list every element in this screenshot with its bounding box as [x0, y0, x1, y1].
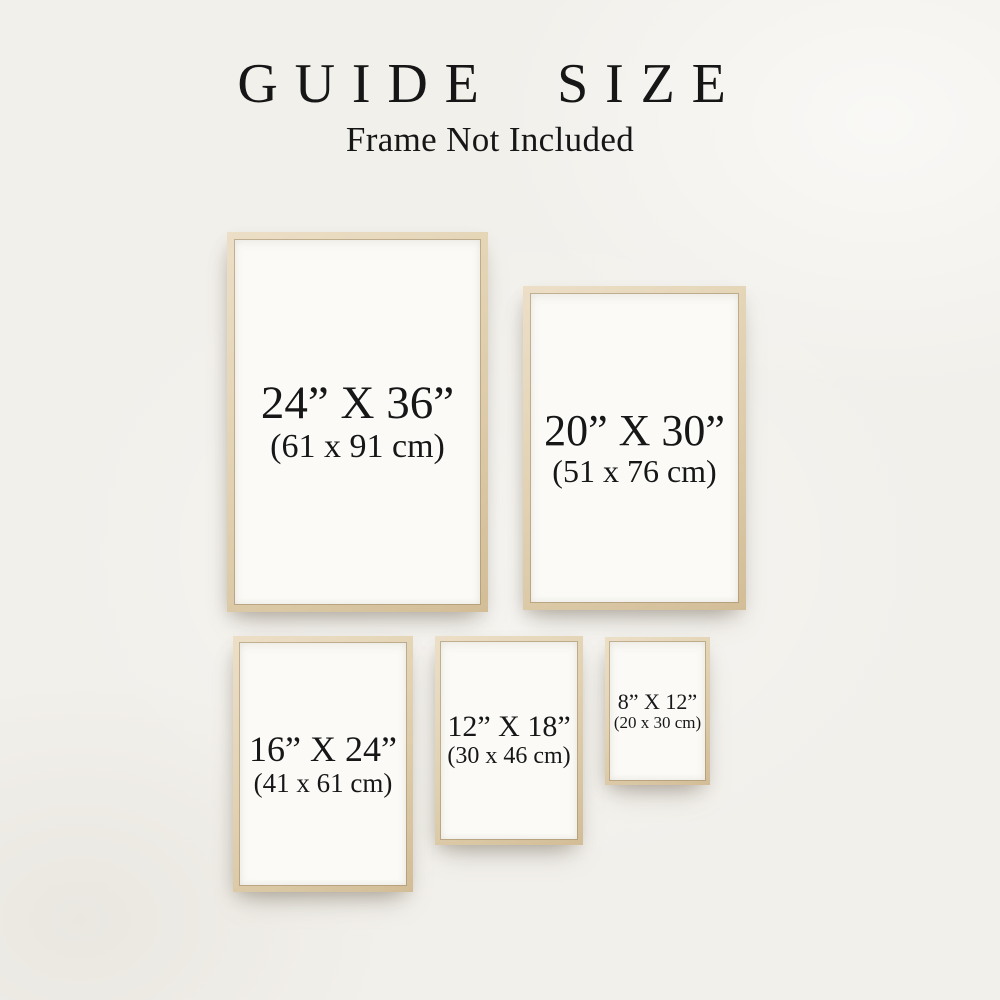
size-label-cm: (41 x 61 cm) — [254, 769, 393, 798]
poster-16x24: 16” X 24” (41 x 61 cm) — [240, 643, 406, 885]
page-title: GUIDE SIZE — [0, 56, 980, 112]
frame-24x36: 24” X 36” (61 x 91 cm) — [227, 232, 488, 612]
size-label-cm: (30 x 46 cm) — [447, 744, 570, 770]
poster-24x36: 24” X 36” (61 x 91 cm) — [235, 240, 480, 604]
poster-12x18: 12” X 18” (30 x 46 cm) — [441, 642, 577, 839]
size-label-cm: (51 x 76 cm) — [552, 454, 716, 489]
header: GUIDE SIZE Frame Not Included — [0, 56, 980, 157]
size-label-inches: 24” X 36” — [261, 378, 454, 429]
size-label-inches: 20” X 30” — [544, 407, 725, 455]
size-label-cm: (61 x 91 cm) — [270, 429, 445, 466]
size-guide-image: GUIDE SIZE Frame Not Included 24” X 36” … — [0, 0, 1000, 1000]
frame-12x18: 12” X 18” (30 x 46 cm) — [435, 636, 583, 845]
size-label-cm: (20 x 30 cm) — [614, 714, 701, 732]
size-label-inches: 16” X 24” — [249, 730, 397, 769]
size-label-inches: 12” X 18” — [447, 711, 570, 743]
size-label-inches: 8” X 12” — [618, 690, 697, 714]
frame-16x24: 16” X 24” (41 x 61 cm) — [233, 636, 413, 892]
frame-20x30: 20” X 30” (51 x 76 cm) — [523, 286, 746, 610]
frame-8x12: 8” X 12” (20 x 30 cm) — [605, 637, 710, 785]
page-subtitle: Frame Not Included — [0, 122, 980, 157]
poster-20x30: 20” X 30” (51 x 76 cm) — [531, 294, 738, 602]
poster-8x12: 8” X 12” (20 x 30 cm) — [610, 642, 705, 780]
